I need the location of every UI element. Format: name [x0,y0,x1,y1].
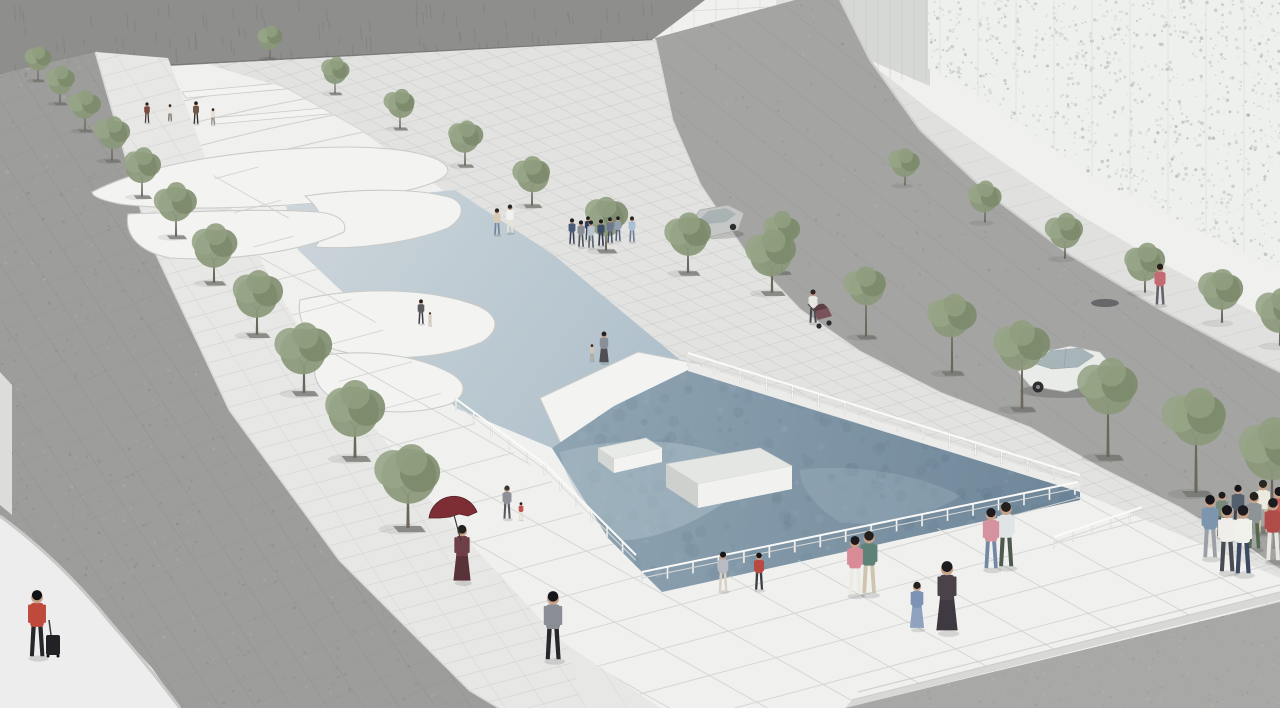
scene-svg [0,0,1280,708]
architectural-rendering [0,0,1280,708]
